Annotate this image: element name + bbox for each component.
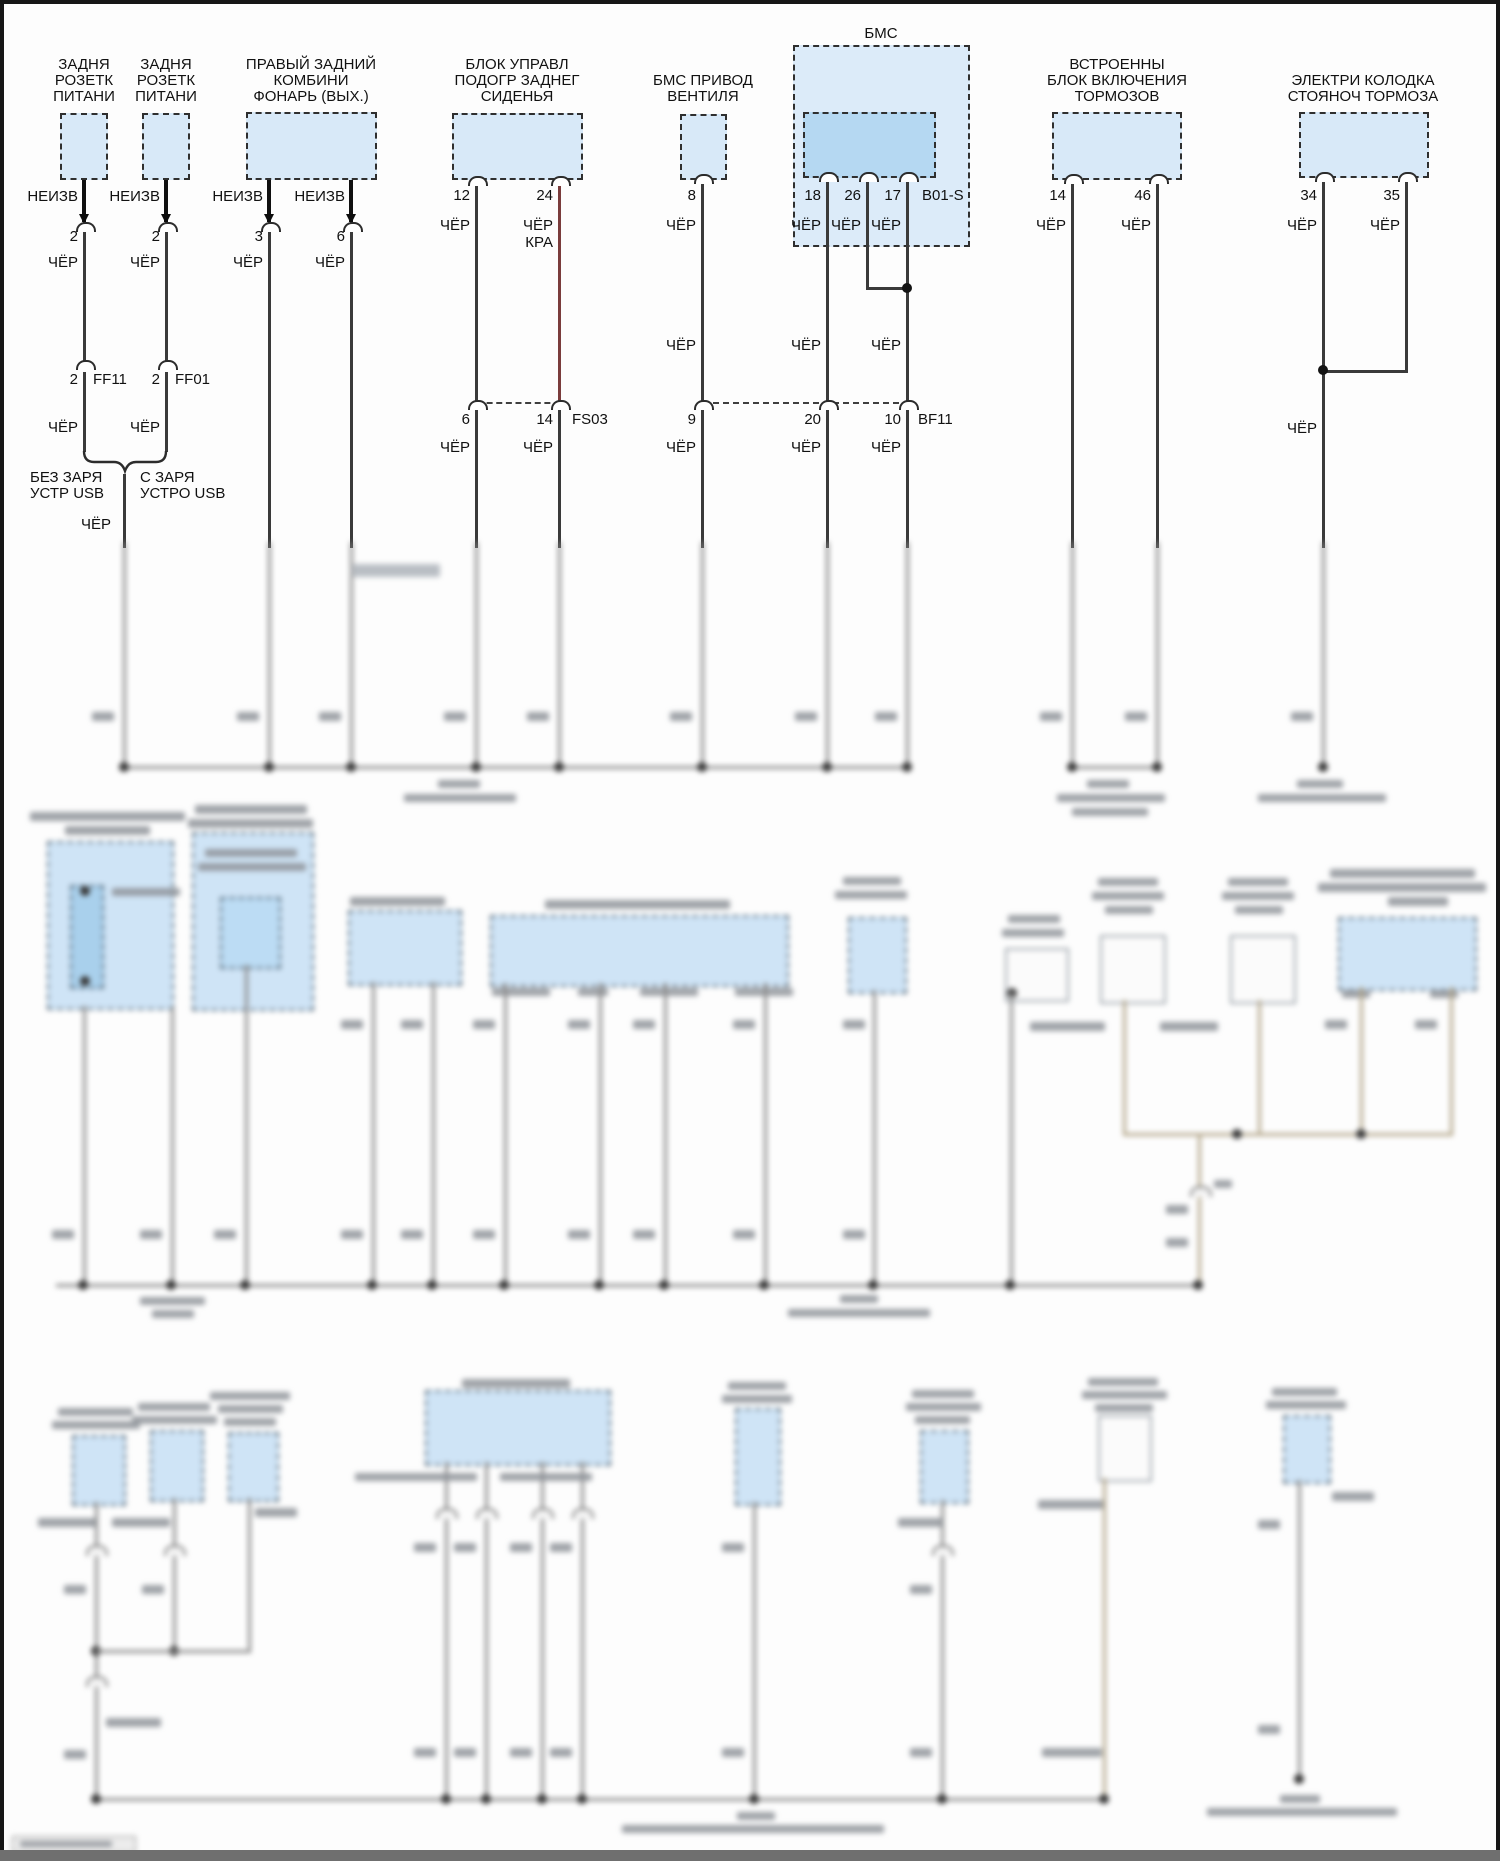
blurred-label: [640, 988, 698, 996]
blurred-ground-label: [1258, 794, 1386, 802]
wire: [1010, 992, 1013, 1285]
junction-dot: [1005, 1280, 1015, 1290]
blurred-label: [112, 1518, 170, 1527]
blurred-label: [1388, 897, 1448, 906]
wire: [664, 983, 667, 1285]
blurred-ground-label: [1072, 808, 1148, 816]
wire: [372, 982, 375, 1285]
blurred-label: [500, 1473, 592, 1481]
wire: [268, 542, 271, 768]
component-box-inner: [220, 897, 281, 969]
blurred-label: [733, 1020, 755, 1029]
component-box: [848, 917, 907, 994]
blurred-label: [1222, 892, 1294, 900]
wire: [1298, 1480, 1301, 1780]
wiring-diagram-page: ЗАДНЯ РОЗЕТК ПИТАНИ ЗАДНЯ РОЗЕТК ПИТАНИ …: [0, 0, 1500, 1861]
wire: [599, 983, 602, 1285]
blurred-label: [492, 988, 550, 996]
blurred-label: [1040, 712, 1062, 721]
blurred-label: [1272, 1388, 1337, 1396]
blurred-label: [64, 1750, 86, 1759]
component-box: [1338, 917, 1477, 991]
component-box-inner: [70, 885, 104, 989]
junction-dot: [697, 762, 707, 772]
page-border-top: [0, 0, 1500, 4]
blurred-label: [319, 712, 341, 721]
wire: [753, 1502, 756, 1799]
blurred-ground-label: [622, 1825, 884, 1833]
wire: [245, 965, 248, 1285]
component-box: [47, 841, 174, 1010]
blurred-label: [1166, 1238, 1188, 1247]
wire-beige: [1450, 987, 1453, 1136]
blurred-label: [218, 1405, 283, 1413]
blurred-label: [722, 1543, 744, 1552]
ground-bus: [1071, 766, 1159, 769]
blurred-label: [1291, 712, 1313, 721]
blurred-label: [64, 1585, 86, 1594]
wire-beige: [1123, 1133, 1453, 1136]
blurred-label: [1330, 869, 1475, 878]
junction-dot: [166, 1280, 176, 1290]
blurred-label: [1088, 1378, 1158, 1386]
connector-arc-icon: [572, 1508, 594, 1519]
blurred-label: [214, 1230, 236, 1239]
blurred-label: [1095, 1404, 1153, 1412]
blurred-label: [188, 819, 313, 828]
blurred-label: [835, 891, 907, 899]
blurred-label: [906, 1403, 981, 1411]
blurred-label: [915, 1416, 970, 1424]
blurred-ground-label: [1087, 780, 1129, 788]
blurred-ground-label: [1057, 794, 1165, 802]
blurred-label: [1082, 1391, 1167, 1399]
blurred-label: [58, 1408, 133, 1416]
connector-arc-icon: [86, 1676, 108, 1687]
blurred-label: [401, 1230, 423, 1239]
connector-arc-icon: [86, 1545, 108, 1556]
component-box: [1100, 935, 1166, 1004]
junction-dot: [537, 1794, 547, 1804]
connector-arc-icon: [932, 1545, 954, 1556]
junction-dot: [937, 1794, 947, 1804]
blurred-label: [1266, 1401, 1346, 1409]
junction-dot: [822, 762, 832, 772]
junction-dot: [471, 762, 481, 772]
blurred-label: [568, 1020, 590, 1029]
connector-arc-icon: [1190, 1186, 1212, 1197]
connector-arc-icon: [436, 1508, 458, 1519]
junction-dot: [749, 1794, 759, 1804]
page-border-bottom: [0, 1850, 1500, 1861]
blurred-label: [1038, 1500, 1103, 1509]
blurred-label: [1008, 915, 1060, 923]
component-box: [735, 1408, 781, 1506]
junction-dot: [78, 1280, 88, 1290]
blurred-label: [255, 1508, 297, 1517]
blurred-label: [473, 1020, 495, 1029]
blurred-label: [350, 897, 445, 906]
wire: [248, 1498, 251, 1653]
blurred-label: [843, 1020, 865, 1029]
blurred-label: [910, 1748, 932, 1757]
blurred-label: [341, 1020, 363, 1029]
wire: [95, 1650, 251, 1653]
wire: [701, 542, 704, 768]
blurred-label: [106, 1718, 161, 1727]
blurred-label: [843, 1230, 865, 1239]
blurred-label: [20, 1841, 112, 1847]
blurred-label: [898, 1518, 943, 1527]
blurred-label: [355, 1473, 477, 1481]
junction-dot: [554, 762, 564, 772]
junction-dot: [1152, 762, 1162, 772]
wire: [173, 1498, 176, 1654]
component-box: [228, 1432, 279, 1502]
blurred-label: [728, 1382, 786, 1390]
wire: [873, 990, 876, 1285]
blurred-label: [1228, 878, 1288, 886]
junction-dot: [264, 762, 274, 772]
junction-dot: [91, 1794, 101, 1804]
wire: [475, 542, 478, 768]
junction-dot: [868, 1280, 878, 1290]
blurred-label: [1042, 1748, 1102, 1757]
blurred-ground-label: [1297, 780, 1343, 788]
blurred-label: [670, 712, 692, 721]
junction-dot: [499, 1280, 509, 1290]
blurred-label: [132, 1416, 217, 1424]
junction-dot: [240, 1280, 250, 1290]
blurred-label: [1125, 712, 1147, 721]
blurred-label: [1214, 1180, 1232, 1188]
blurred-label: [1332, 1492, 1374, 1501]
junction-dot: [481, 1794, 491, 1804]
wire: [1322, 542, 1325, 768]
blurred-label: [140, 1230, 162, 1239]
blurred-label: [510, 1543, 532, 1552]
blurred-label: [1030, 1022, 1105, 1031]
blurred-label: [454, 1748, 476, 1757]
junction-dot: [902, 762, 912, 772]
blurred-ground-label: [1207, 1808, 1397, 1816]
component-box: [150, 1430, 204, 1502]
wire: [906, 542, 909, 768]
junction-dot: [577, 1794, 587, 1804]
junction-dot: [367, 1280, 377, 1290]
blurred-label: [1325, 1020, 1347, 1029]
blurred-label: [510, 1748, 532, 1757]
component-box: [490, 915, 789, 987]
blurred-label: [237, 712, 259, 721]
blurred-ground-label: [438, 780, 480, 788]
junction-dot: [594, 1280, 604, 1290]
blurred-label: [1235, 906, 1283, 914]
blurred-label: [722, 1748, 744, 1757]
page-border-right: [1496, 0, 1500, 1861]
blurred-label: [401, 1020, 423, 1029]
blurred-label: [142, 1585, 164, 1594]
blurred-label: [462, 1379, 570, 1388]
junction-dot: [80, 886, 90, 896]
wire: [826, 542, 829, 768]
blurred-label: [1092, 892, 1164, 900]
junction-dot: [427, 1280, 437, 1290]
wire: [123, 542, 126, 768]
junction-dot: [1193, 1280, 1203, 1290]
component-box: [348, 910, 462, 986]
blurred-label: [341, 1230, 363, 1239]
ground-bus: [56, 1284, 1202, 1287]
blurred-label: [52, 1421, 140, 1429]
wire-beige: [1360, 987, 1363, 1136]
blurred-label: [633, 1230, 655, 1239]
blurred-label: [910, 1585, 932, 1594]
wire-beige: [1103, 1478, 1106, 1799]
blurred-label: [550, 1748, 572, 1757]
blurred-ground-label: [840, 1295, 878, 1303]
blurred-label: [1415, 1020, 1437, 1029]
page-border-left: [0, 0, 4, 1861]
junction-dot: [759, 1280, 769, 1290]
connector-arc-icon: [476, 1508, 498, 1519]
blurred-label: [633, 1020, 655, 1029]
junction-dot: [441, 1794, 451, 1804]
blurred-ground-label: [152, 1310, 194, 1318]
blurred-label: [198, 863, 306, 871]
junction-dot: [1067, 762, 1077, 772]
blurred-label: [205, 849, 297, 857]
junction-dot: [659, 1280, 669, 1290]
blurred-label: [912, 1390, 974, 1398]
blurred-label: [1160, 1022, 1218, 1031]
junction-dot: [1099, 1794, 1109, 1804]
junction-dot: [1356, 1129, 1366, 1139]
blurred-label: [112, 888, 180, 896]
blurred-label: [568, 1230, 590, 1239]
blurred-label: [414, 1543, 436, 1552]
blurred-label: [550, 1543, 572, 1552]
junction-dot: [1318, 762, 1328, 772]
blurred-label: [1430, 990, 1458, 998]
blurred-label: [65, 826, 150, 835]
blurred-label: [38, 1518, 96, 1527]
junction-dot: [1232, 1129, 1242, 1139]
blurred-label: [1342, 990, 1370, 998]
blurred-label: [1318, 883, 1486, 892]
junction-dot: [80, 976, 90, 986]
blurred-label: [414, 1748, 436, 1757]
component-box: [1230, 935, 1296, 1004]
blurred-ground-label: [788, 1309, 930, 1317]
blurred-label: [52, 1230, 74, 1239]
blurred-label: [1258, 1520, 1280, 1529]
blurred-ground-label: [1280, 1795, 1320, 1803]
diagram-blurred-layer: [0, 0, 1500, 1861]
blurred-label: [224, 1418, 276, 1426]
wire: [432, 982, 435, 1285]
ground-bus: [123, 766, 909, 769]
junction-dot: [1294, 1774, 1304, 1784]
blurred-label: [473, 1230, 495, 1239]
component-box: [1098, 1415, 1152, 1482]
blurred-ground-label: [737, 1812, 775, 1820]
component-box: [920, 1430, 969, 1504]
wire: [764, 983, 767, 1285]
wire: [171, 1007, 174, 1285]
blurred-label: [545, 900, 730, 909]
component-box: [72, 1435, 126, 1506]
blurred-label: [92, 712, 114, 721]
blurred-label: [875, 712, 897, 721]
wire: [83, 1006, 86, 1285]
blurred-label: [210, 1392, 290, 1400]
blurred-label: [1258, 1725, 1280, 1734]
component-box: [1283, 1415, 1331, 1484]
blurred-label: [195, 805, 307, 814]
wire: [558, 542, 561, 768]
wire: [504, 983, 507, 1285]
wire-beige: [1198, 1136, 1201, 1285]
blurred-label: [578, 988, 608, 996]
blurred-ground-label: [404, 794, 516, 802]
junction-dot: [346, 762, 356, 772]
blurred-label: [1098, 878, 1158, 886]
wire: [1071, 542, 1074, 768]
wire-beige: [1123, 1000, 1126, 1136]
blurred-ground-label: [140, 1297, 205, 1305]
blurred-label: [454, 1543, 476, 1552]
blurred-label: [1166, 1205, 1188, 1214]
component-box: [425, 1390, 611, 1466]
blurred-label: [733, 1230, 755, 1239]
blurred-label: [30, 812, 185, 821]
connector-arc-icon: [532, 1508, 554, 1519]
wire-beige: [1258, 1000, 1261, 1136]
blurred-label: [795, 712, 817, 721]
blurred-label: [1105, 906, 1153, 914]
junction-dot: [119, 762, 129, 772]
blurred-label: [444, 712, 466, 721]
connector-arc-icon: [164, 1545, 186, 1556]
blurred-label: [722, 1395, 792, 1403]
blurred-label: [138, 1403, 210, 1411]
blurred-label: [352, 564, 440, 577]
ground-bus: [95, 1798, 1106, 1801]
blurred-label: [1002, 929, 1064, 937]
wire: [1156, 542, 1159, 768]
blurred-label: [843, 877, 901, 885]
blurred-label: [527, 712, 549, 721]
